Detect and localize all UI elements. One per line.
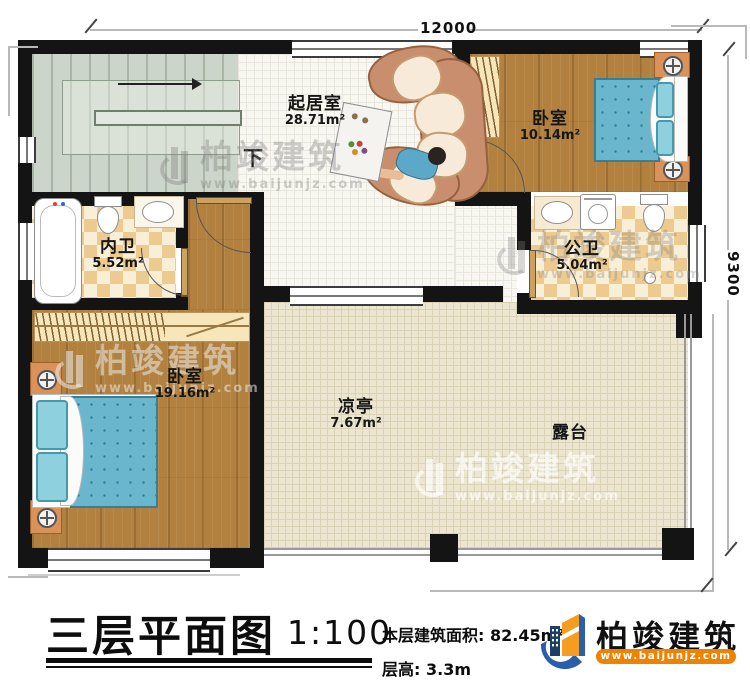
brand-website: www.baijunjz.com [596, 649, 736, 664]
exterior-line [8, 46, 10, 116]
sink-basin [541, 201, 573, 224]
room-name: 内卫 [70, 238, 166, 257]
dimension-tick [722, 41, 735, 56]
pillow [656, 82, 674, 118]
room-area: 28.71m² [255, 114, 375, 128]
stair-arrow-icon [192, 78, 202, 90]
washing-machine [580, 194, 616, 230]
room-area: 5.04m² [534, 259, 630, 273]
room-name: 公卫 [534, 240, 630, 259]
wall-segment [250, 310, 264, 568]
terrace-railing [690, 314, 692, 554]
wall-segment [264, 286, 290, 302]
floor-height-value: 3.3m [426, 660, 471, 679]
room-label-pavilion: 凉亭 7.67m² [306, 398, 406, 431]
room-area: 7.67m² [306, 417, 406, 431]
floor-plan-sheet: 下 [0, 0, 750, 681]
wall-segment [452, 40, 640, 54]
room-label-bedroom-top: 卧室 10.14m² [492, 110, 608, 143]
terrace-post [662, 528, 694, 560]
wall-segment [250, 192, 264, 310]
lamp-icon [663, 56, 683, 76]
wall-segment [676, 300, 702, 338]
washer-drum [588, 204, 608, 224]
title-underline [46, 666, 372, 668]
terrace-railing [264, 548, 692, 550]
room-name: 起居室 [255, 95, 375, 114]
exterior-line [8, 576, 48, 578]
window [18, 137, 36, 163]
pillow [36, 452, 68, 502]
closet-hangers [35, 313, 165, 341]
stair-direction-line [118, 83, 192, 85]
lamp-icon [37, 370, 57, 390]
room-name: 凉亭 [306, 398, 406, 417]
dimension-tick [84, 18, 97, 33]
wall-segment [423, 286, 503, 302]
room-label-public-bath: 公卫 5.04m² [534, 240, 630, 273]
faucet-icon [53, 202, 57, 206]
pillow [656, 120, 674, 156]
dimension-line [727, 55, 729, 250]
room-label-terrace: 露台 [525, 424, 615, 443]
headboard [674, 76, 688, 162]
room-area: 10.14m² [492, 129, 608, 143]
room-name: 卧室 [135, 368, 235, 387]
terrace-post [430, 534, 458, 562]
exterior-line [8, 46, 38, 48]
floor-height-text: 层高: 3.3m [382, 656, 471, 680]
stair-rail [94, 110, 242, 126]
closet-brace [186, 317, 244, 337]
closet [34, 312, 250, 342]
nightstand [654, 52, 690, 78]
title-underline [46, 658, 372, 663]
wall-segment [688, 40, 702, 225]
room-name: 露台 [525, 424, 615, 443]
dimension-depth: 9300 [724, 251, 742, 297]
sliding-door [290, 286, 423, 306]
wall-segment [18, 548, 48, 568]
sink-basin [142, 201, 174, 223]
window [48, 548, 210, 572]
wall-segment [210, 548, 264, 568]
floor-height-label: 层高: [382, 660, 420, 679]
sheet-title: 三层平面图 [46, 602, 276, 664]
exterior-line [745, 25, 747, 59]
exterior-line [430, 590, 714, 592]
stair-down-label: 下 [243, 142, 263, 171]
wall-segment [517, 192, 531, 250]
exterior-line [712, 314, 714, 592]
room-name: 卧室 [492, 110, 608, 129]
pillow [36, 400, 68, 450]
dimension-line [90, 29, 418, 31]
room-label-bedroom-left: 卧室 19.16m² [135, 368, 235, 401]
room-label-living: 起居室 28.71m² [255, 95, 375, 128]
brand-logo-icon [536, 608, 592, 672]
room-label-ensuite-bath: 内卫 5.52m² [70, 238, 166, 271]
floor-area-label: 本层建筑面积: [382, 626, 484, 645]
floor-drain [644, 272, 656, 284]
flower-vase-icon [356, 140, 363, 147]
room-area: 5.52m² [70, 257, 166, 271]
sheet-scale: 1:100 [287, 613, 392, 652]
wall-segment [18, 40, 292, 54]
exterior-line [28, 574, 240, 576]
exterior-line [671, 25, 747, 27]
wall-segment [531, 300, 688, 314]
washer-panel [584, 198, 612, 200]
terrace-railing [264, 554, 692, 556]
wall-segment [18, 54, 32, 137]
terrace-railing [684, 314, 686, 554]
dimension-line [470, 29, 702, 31]
person-head [428, 147, 446, 165]
lamp-icon [37, 508, 57, 528]
dimension-line [727, 300, 729, 550]
window [688, 225, 706, 282]
lamp-icon [663, 160, 683, 180]
room-area: 19.16m² [135, 387, 235, 401]
nightstand [30, 362, 62, 396]
dimension-width: 12000 [420, 19, 477, 37]
